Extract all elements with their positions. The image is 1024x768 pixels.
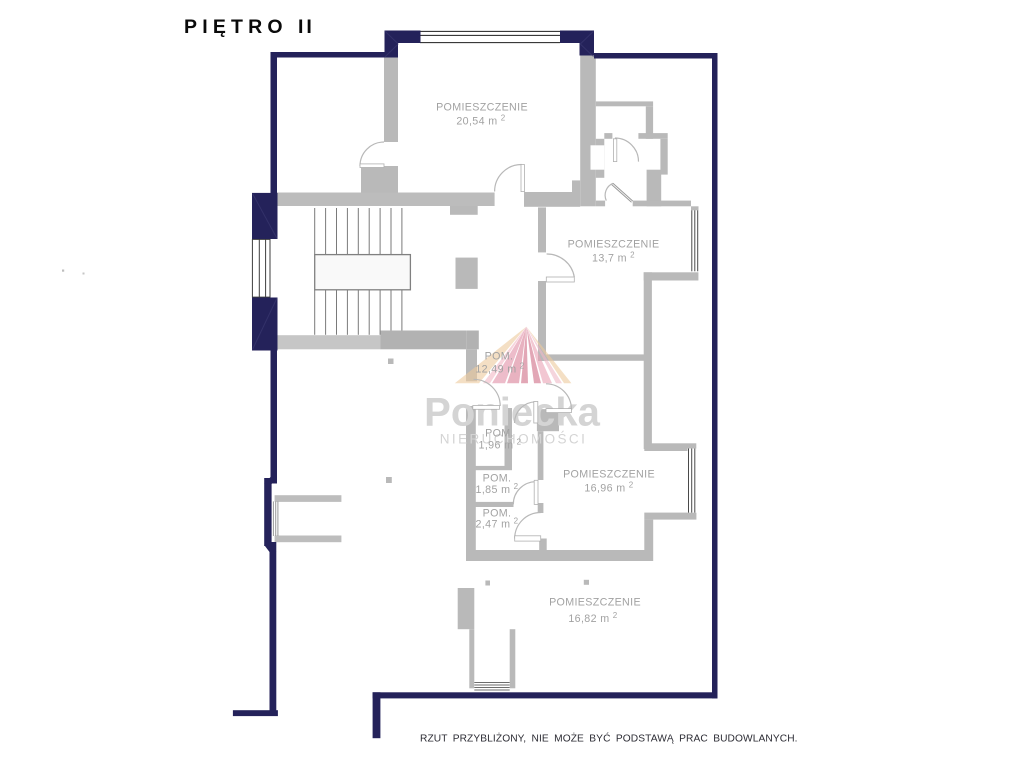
svg-text:2,47 m 2: 2,47 m 2: [476, 517, 519, 531]
svg-text:POM.: POM.: [483, 473, 512, 485]
svg-text:POMIESZCZENIE: POMIESZCZENIE: [549, 597, 641, 609]
svg-text:II: II: [298, 16, 315, 38]
svg-text:12,49 m 2: 12,49 m 2: [475, 362, 524, 376]
svg-text:POM.: POM.: [485, 428, 514, 440]
svg-text:POMIESZCZENIE: POMIESZCZENIE: [563, 468, 655, 480]
svg-text:16,96 m 2: 16,96 m 2: [584, 480, 633, 494]
svg-text:16,82 m 2: 16,82 m 2: [568, 611, 617, 625]
svg-text:PIĘTRO: PIĘTRO: [184, 16, 288, 38]
svg-text:1,85 m 2: 1,85 m 2: [476, 482, 519, 496]
svg-text:POMIESZCZENIE: POMIESZCZENIE: [436, 101, 528, 113]
svg-text:13,7 m 2: 13,7 m 2: [592, 251, 635, 265]
svg-text:20,54 m 2: 20,54 m 2: [456, 114, 505, 128]
svg-text:1,96 m 2: 1,96 m 2: [479, 437, 522, 451]
svg-text:RZUT PRZYBLIŻONY, NIE MOŻE BYĆ: RZUT PRZYBLIŻONY, NIE MOŻE BYĆ PODSTAWĄ …: [420, 732, 798, 745]
svg-text:POMIESZCZENIE: POMIESZCZENIE: [568, 239, 660, 251]
svg-text:POM.: POM.: [485, 350, 514, 362]
